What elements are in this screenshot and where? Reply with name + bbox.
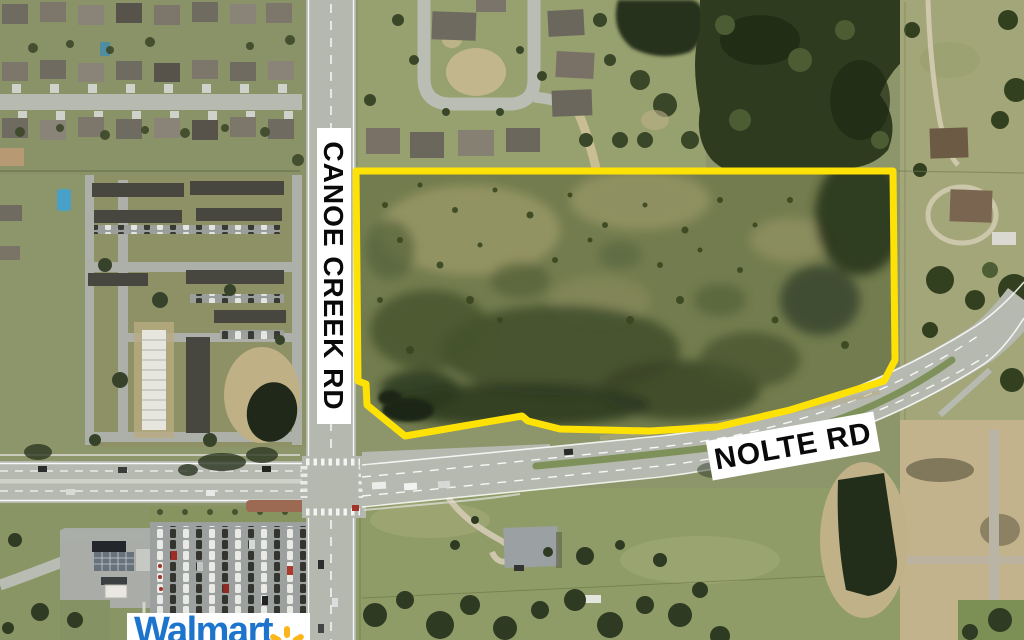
satellite-imagery	[0, 0, 1024, 640]
walmart-logo: Walmart	[127, 613, 310, 640]
walmart-wordmark: Walmart	[134, 610, 272, 640]
aerial-map: CANOE CREEK RD NOLTE RD Walmart	[0, 0, 1024, 640]
retention-pond	[820, 462, 908, 618]
walmart-spark-icon	[264, 615, 310, 640]
house-roof	[503, 526, 558, 568]
parcel-interior	[356, 155, 905, 436]
forest	[695, 0, 910, 178]
apartment-complex	[85, 175, 307, 447]
road-label-text: CANOE CREEK RD	[318, 141, 349, 410]
dirt-bank	[900, 420, 1024, 640]
road-label-canoe-creek: CANOE CREEK RD	[317, 128, 351, 424]
